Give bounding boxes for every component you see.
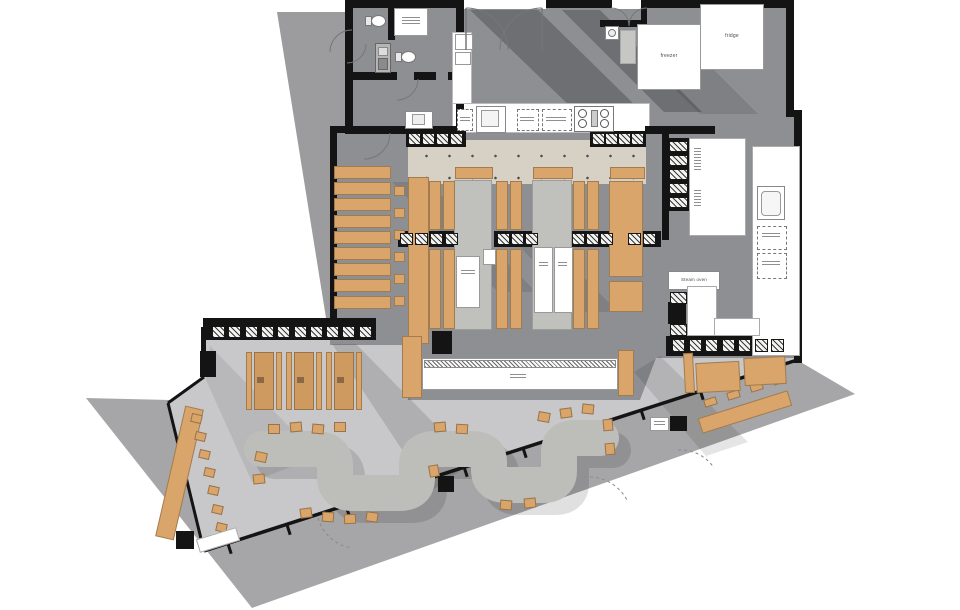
door-swing-dashed [0, 0, 960, 610]
floor-plan: freezerfridgeSteam oven [0, 0, 960, 610]
